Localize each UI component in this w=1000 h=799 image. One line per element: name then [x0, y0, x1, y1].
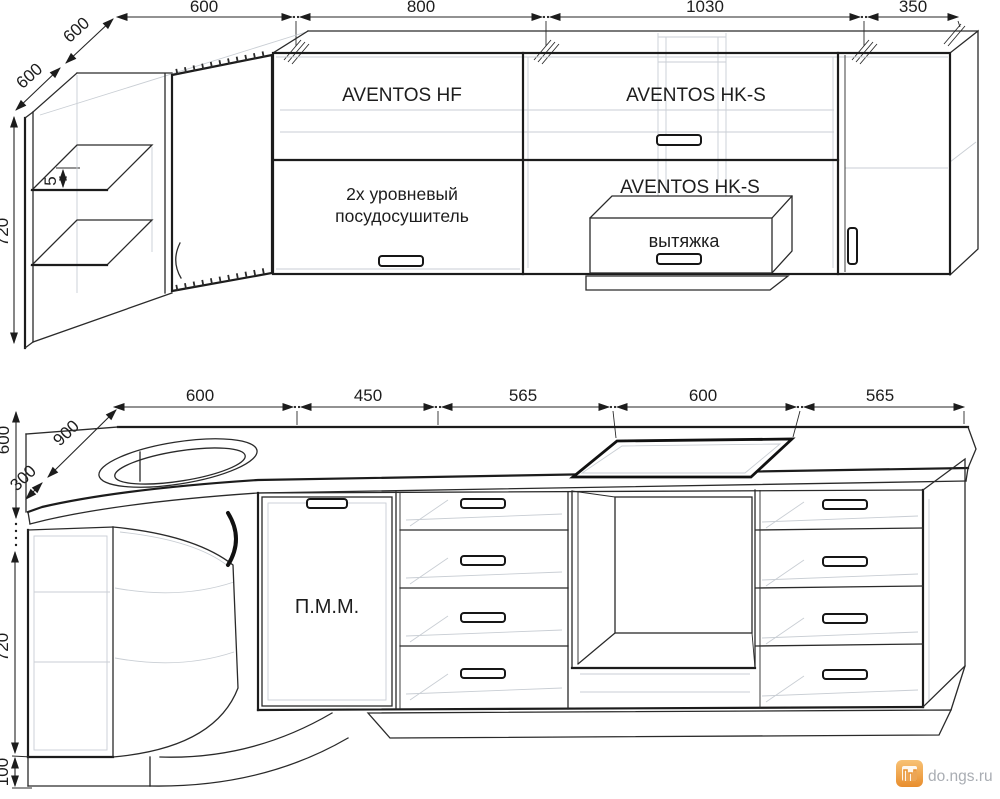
dim-lower-450: 450: [354, 386, 382, 405]
dishwasher-handle: [307, 499, 347, 508]
wall-cabinet-800: AVENTOS HF 2х уровневый посудосушитель: [335, 85, 469, 266]
drawer-unit-565: [756, 500, 923, 679]
left-shelf-side: [25, 73, 172, 348]
dim-plinth-100: 100: [0, 758, 12, 786]
upper-depth-dimension: 600 600: [12, 13, 113, 110]
hood-box: вытяжка: [586, 196, 792, 290]
label-dishwasher: П.М.М.: [295, 596, 359, 618]
drawer-handle: [823, 614, 867, 623]
dimension-slashes: [284, 24, 965, 64]
wall-cabinet-350: [848, 228, 857, 264]
lower-depth-dimension: 900 300: [6, 410, 116, 499]
dim-upper-600: 600: [190, 0, 218, 16]
dishwasher-cabinet: П.М.М.: [262, 497, 392, 706]
glass-shelf-bottom: [32, 220, 152, 265]
dim-upper-1030: 1030: [686, 0, 724, 16]
corner-base-cabinet: [28, 513, 348, 786]
watermark: do.ngs.ru: [896, 760, 993, 787]
drawer-handle: [461, 499, 505, 508]
drawer-unit-450: [400, 499, 568, 678]
label-dryer-line1: 2х уровневый: [346, 184, 458, 204]
plinth: [368, 666, 965, 738]
hks-top-handle: [657, 135, 701, 145]
lower-dimension-line: 600 450 565 600 565: [114, 386, 964, 438]
upper-ghost-lines: [40, 32, 976, 293]
dim-900: 900: [49, 416, 83, 449]
kitchen-drawing: 600 800 1030 350 600 600 720 5: [0, 0, 1000, 799]
hood-handle: [657, 254, 701, 264]
drawer-handle: [461, 613, 505, 622]
dim-lower-565a: 565: [509, 386, 537, 405]
dim-depth-600-b: 600: [12, 59, 46, 92]
shelf-gap-dimension: 5: [41, 168, 80, 187]
curved-door: [113, 527, 238, 757]
oven-cavity: [572, 490, 755, 668]
drawer-handle: [461, 556, 505, 565]
curved-door-handle: [228, 513, 236, 565]
corner-door-handle: [176, 243, 181, 278]
dim-upper-350: 350: [899, 0, 927, 16]
label-aventos-hks-top: AVENTOS HK-S: [626, 85, 766, 106]
hood-bottom-panel: [586, 276, 788, 290]
drawer-handle: [823, 500, 867, 509]
dim-depth-600-a: 600: [59, 13, 93, 46]
drawing-page: 600 800 1030 350 600 600 720 5: [0, 0, 1000, 799]
dim-counter-600: 600: [0, 426, 13, 454]
dim-lower-565b: 565: [866, 386, 894, 405]
base-cabinets: П.М.М.: [28, 459, 965, 786]
label-hood: вытяжка: [649, 231, 721, 251]
upper-cabinets: AVENTOS HF 2х уровневый посудосушитель A…: [25, 31, 978, 348]
cabinet-350-handle: [848, 228, 857, 264]
upper-height-dimension: 720: [0, 117, 14, 343]
corner-wall-cabinet: [165, 53, 272, 293]
label-aventos-hf: AVENTOS HF: [342, 85, 462, 106]
label-dryer-line2: посудосушитель: [335, 206, 469, 226]
wall-cabinet-1030: AVENTOS HK-S AVENTOS HK-S: [620, 85, 766, 198]
label-aventos-hks-bottom: AVENTOS HK-S: [620, 177, 760, 198]
drawer-handle: [823, 557, 867, 566]
dim-lower-600a: 600: [186, 386, 214, 405]
drawer-handle: [461, 669, 505, 678]
drawer-handle: [823, 670, 867, 679]
dryer-door-handle: [379, 256, 423, 266]
dim-lower-600b: 600: [689, 386, 717, 405]
upper-right-side-panel: [950, 31, 978, 275]
dim-upper-720: 720: [0, 218, 12, 246]
watermark-text: do.ngs.ru: [928, 768, 993, 785]
dim-upper-800: 800: [407, 0, 435, 16]
cooktop: [573, 439, 792, 477]
dim-lower-720: 720: [0, 633, 12, 661]
